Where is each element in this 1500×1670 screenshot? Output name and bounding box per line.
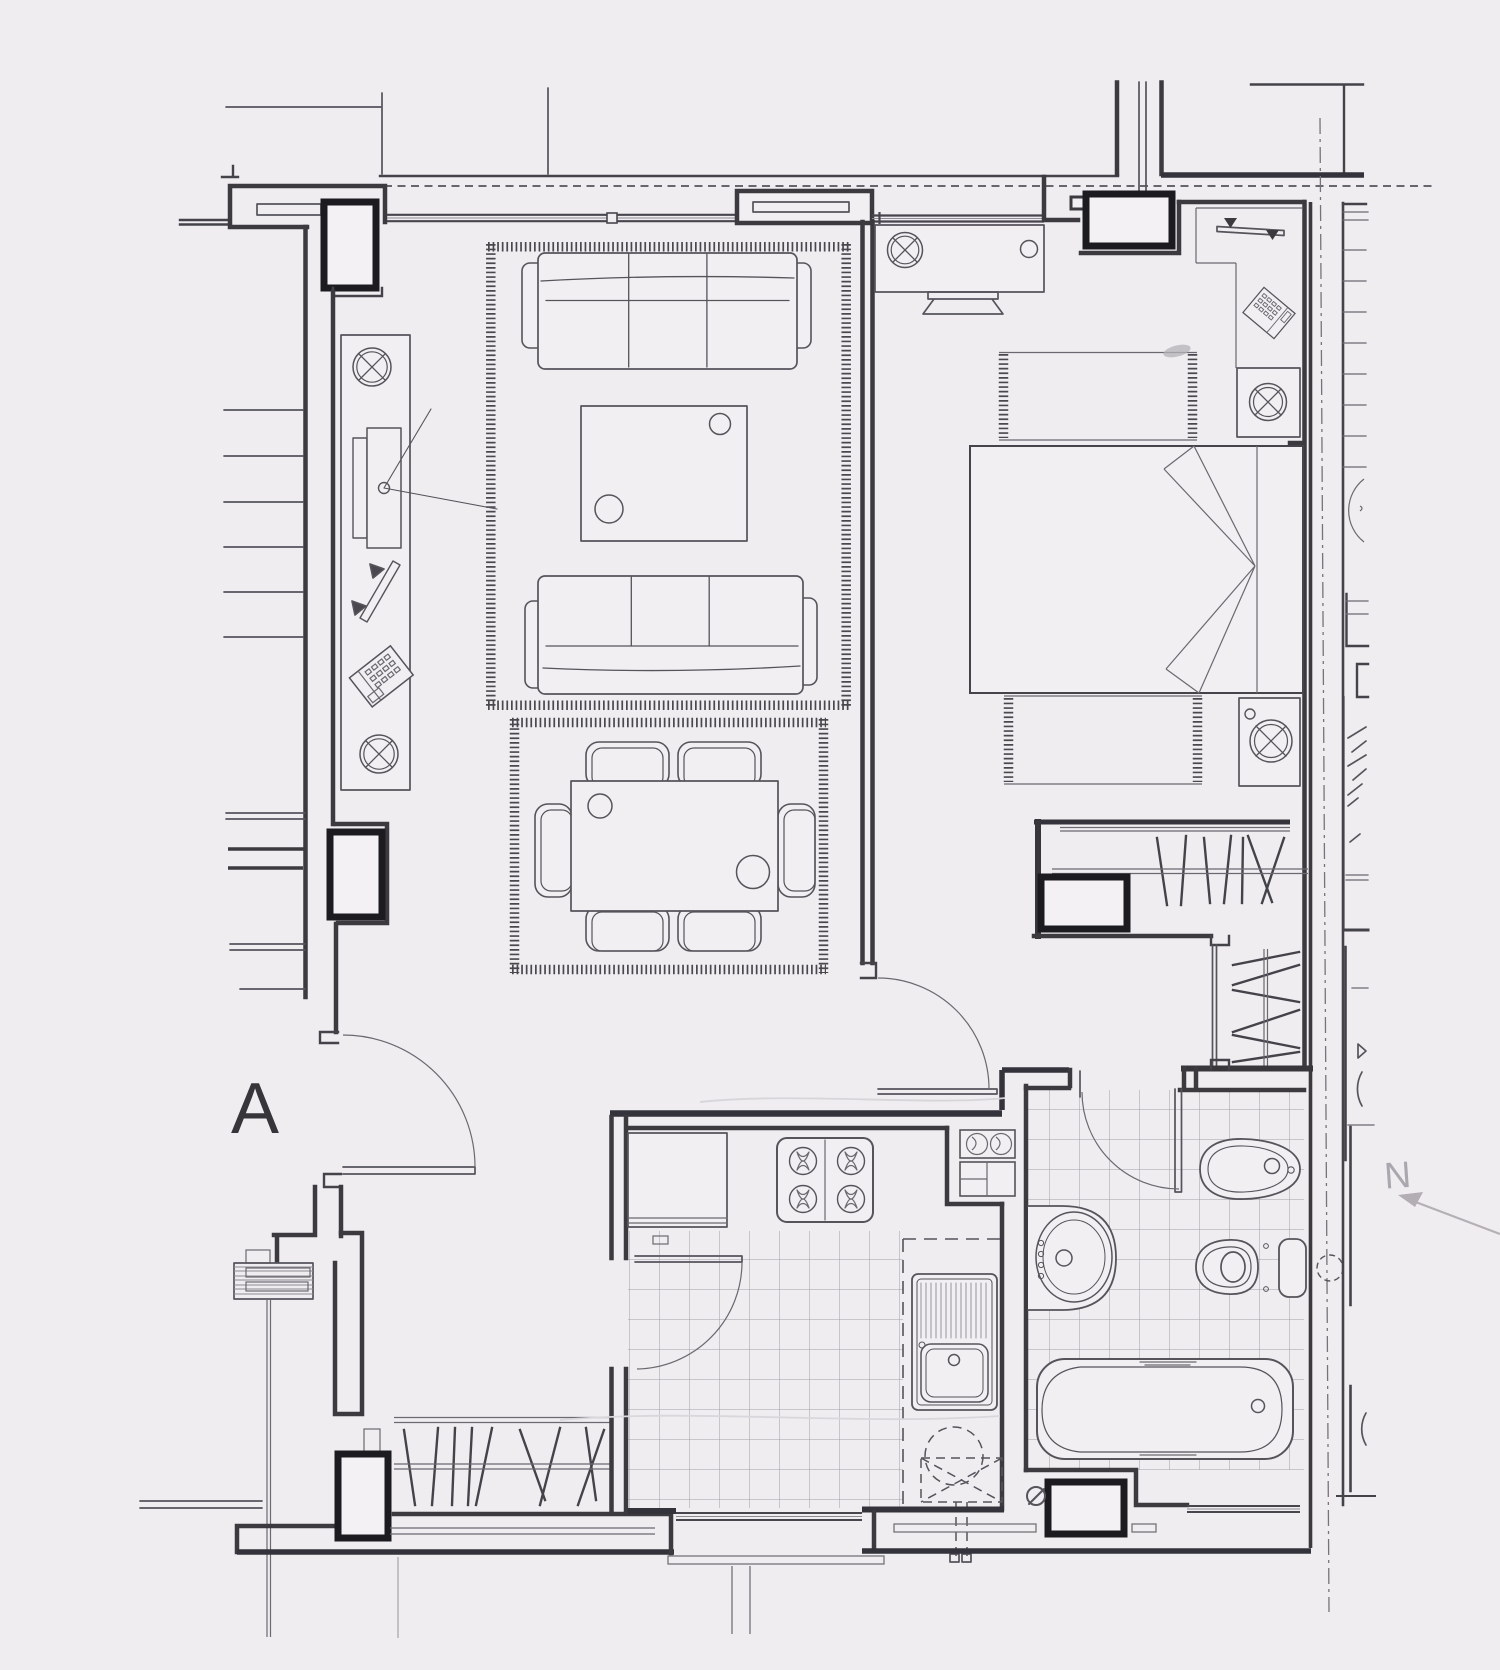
svg-text:A: A [231, 1069, 279, 1149]
svg-text:N: N [1383, 1154, 1413, 1197]
